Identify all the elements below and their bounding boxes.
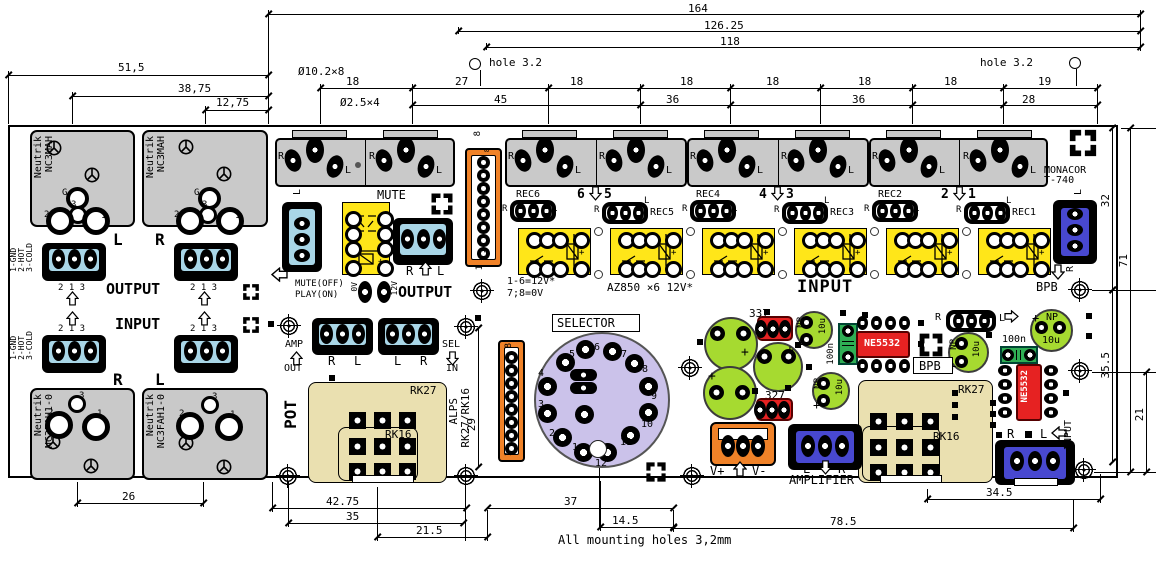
rca-channel-label: L (575, 166, 581, 176)
alps-model-label: RK27/RK16 (460, 388, 471, 448)
selector-pin-label: 4 (538, 369, 544, 379)
pot-pad (399, 412, 416, 429)
mounting-hole (472, 281, 492, 301)
np-label: NP (1046, 313, 1058, 323)
rec-channel-label: L (552, 205, 557, 214)
solder-pad (885, 316, 896, 330)
solder-pad (397, 137, 415, 163)
dim-line (412, 105, 1097, 106)
dim-line (1020, 350, 1021, 360)
np-label: NP (814, 378, 823, 389)
via-pad (870, 270, 879, 279)
connector-pad (82, 413, 110, 441)
dim-line (486, 43, 487, 50)
dim-line (8, 75, 268, 76)
solder-pad (877, 203, 888, 219)
rca-channel-label: R (508, 152, 514, 162)
solder-pad (358, 281, 372, 303)
np-label: NP (950, 339, 959, 350)
relay-pad (552, 232, 569, 249)
rec-channel-label: R (956, 206, 961, 215)
solder-pad (505, 403, 518, 416)
rec-channel-label: L (914, 205, 919, 214)
hole-callout-label: hole 3.2 (980, 57, 1033, 68)
solder-pad (695, 203, 706, 219)
dim-line (1076, 69, 1077, 86)
rec-channel-label: R (594, 206, 599, 215)
solder-pad (900, 137, 918, 163)
via-square (952, 390, 958, 396)
solder-pad (402, 324, 415, 344)
dim-line (8, 71, 9, 124)
xlr-brand-label: Neutrik (34, 394, 44, 436)
connector-pad (176, 207, 204, 235)
dim-line (1112, 128, 1113, 290)
dim-label: 32 (1100, 194, 1111, 207)
solder-pad (966, 313, 977, 329)
dot (355, 162, 361, 168)
connector-pad (215, 413, 243, 441)
solder-pad (903, 203, 914, 219)
direction-arrow-icon (771, 186, 784, 201)
pin-label: 3 (202, 201, 207, 210)
pin-label: 2 (48, 409, 53, 418)
electrolytic-cap (704, 317, 758, 371)
dim-line (77, 503, 203, 504)
solder-pad (477, 195, 490, 208)
direction-arrow-icon (733, 461, 747, 477)
pot-pad (870, 413, 887, 430)
dim-line (1140, 10, 1141, 51)
via-square (986, 332, 992, 338)
dim-line (842, 345, 854, 346)
pcb-logo-icon (430, 192, 454, 216)
solder-pad (710, 326, 725, 341)
via-square (752, 388, 758, 394)
dim-label: 18 (680, 76, 693, 87)
solder-pad (885, 359, 896, 373)
rca-channel-label: L (1030, 166, 1036, 176)
solder-pad (1002, 349, 1014, 361)
xlr-model-label: NC3MAH (157, 136, 167, 172)
solder-pad (477, 169, 490, 182)
solder-pad (417, 229, 430, 249)
dim-line (458, 31, 1140, 32)
np-label: NP (797, 317, 806, 328)
solder-pad (84, 249, 97, 269)
dim-line (268, 10, 269, 124)
channel-label: R (935, 313, 941, 323)
channel-label: L (1074, 189, 1084, 195)
dim-label: 26 (122, 491, 135, 502)
dim-line (1094, 472, 1156, 473)
via-square (996, 432, 1002, 438)
rec-label: REC4 (696, 190, 720, 200)
rca-mount-tab (613, 130, 668, 138)
input-section-label: INPUT (115, 317, 160, 332)
solder-pad (528, 203, 539, 219)
plus-mark: + (813, 399, 820, 411)
solder-pad (505, 416, 518, 429)
channel-label: L (437, 265, 444, 277)
solder-pad (754, 401, 766, 419)
via-pad (686, 227, 695, 236)
pot-pad (349, 412, 366, 429)
mounting-hole (456, 317, 476, 337)
solder-pad (800, 205, 811, 221)
pin1-label: 1 (505, 451, 514, 456)
rca-mount-tab (704, 130, 759, 138)
rca-channel-label: L (939, 166, 945, 176)
pcb-layout-canvas: 164126.2511851,538,7512,752642.75373514.… (0, 0, 1162, 563)
ground-symbol-icon (83, 458, 99, 474)
direction-arrow-icon (1004, 310, 1019, 323)
via-square (952, 402, 958, 408)
connector-pad (46, 207, 74, 235)
dim-line (72, 92, 73, 124)
relay-pad (828, 261, 845, 278)
mounting-note: All mounting holes 3,2mm (558, 534, 731, 546)
solder-pad (998, 365, 1012, 376)
via-pad (962, 227, 971, 236)
solder-pad (787, 205, 798, 221)
dim-label: 27 (455, 76, 468, 87)
solder-pad (216, 341, 229, 361)
via-pad (686, 270, 695, 279)
relay-pad (920, 261, 937, 278)
relay-pad (573, 232, 590, 249)
dim-label: 118 (720, 36, 740, 47)
pin1-label: 1 (484, 249, 491, 253)
solder-pad (84, 341, 97, 361)
solder-pad (1067, 208, 1083, 220)
solder-pad (306, 137, 324, 163)
rca-channel-label: L (666, 166, 672, 176)
dim-label: 164 (688, 3, 708, 14)
pot-pad (896, 413, 913, 430)
pin8-label: 8 (474, 131, 483, 136)
dim-line (1121, 128, 1156, 129)
ground-symbol-icon (45, 434, 61, 450)
solder-pad (216, 249, 229, 269)
channel-label: L (394, 355, 401, 367)
solder-pad (708, 203, 719, 219)
input-number-label: 4 (759, 188, 767, 201)
solder-pad (857, 359, 868, 373)
pot-pad (922, 439, 939, 456)
solder-pad (52, 249, 65, 269)
vplus-label: V+ (710, 465, 724, 477)
solder-pad (1044, 379, 1058, 390)
plus-mark: + (671, 249, 676, 258)
relay-pad (345, 211, 362, 228)
solder-pad (835, 435, 849, 457)
rec-channel-label: R (682, 205, 687, 214)
via-square (862, 312, 868, 318)
rca-mount-tab (522, 130, 577, 138)
rca-channel-label: R (278, 152, 284, 162)
solder-pad (1044, 407, 1058, 418)
dim-line (673, 528, 1073, 529)
solder-pad (620, 205, 631, 221)
solder-pad (352, 324, 365, 344)
solder-pad (1067, 240, 1083, 252)
solder-pad (721, 435, 735, 457)
solder-pad (899, 359, 910, 373)
pin-label: 1 (101, 212, 106, 221)
dim-line (959, 139, 960, 186)
solder-pad (515, 203, 526, 219)
solder-pad (766, 401, 778, 419)
rca-mount-tab (977, 130, 1032, 138)
solder-pad (998, 379, 1012, 390)
ground-symbol-icon (178, 139, 194, 155)
relay-pad (345, 241, 362, 258)
cap-value-label: 10u (973, 341, 982, 357)
pin8-label: 8 (505, 343, 514, 348)
ground-symbol-icon (216, 459, 232, 475)
rca-channel-label: L (436, 166, 442, 176)
dim-line (272, 508, 466, 509)
dim-line (596, 139, 597, 186)
dim-line (1100, 474, 1101, 503)
rec-channel-label: R (774, 206, 779, 215)
solder-pad (998, 407, 1012, 418)
dim-line (480, 70, 481, 86)
solder-pad (991, 137, 1009, 163)
output-section-label: OUTPUT (106, 282, 160, 297)
pcb-logo-icon (1068, 128, 1098, 158)
via-pad (594, 270, 603, 279)
pin-label: 2 (44, 211, 49, 220)
solder-pad (477, 221, 490, 234)
direction-arrow-icon (1051, 264, 1065, 280)
solder-pad (1010, 451, 1024, 471)
dim-line (365, 139, 366, 186)
relay-pad (1033, 261, 1050, 278)
rec-channel-label: L (1006, 197, 1011, 206)
selector-pin-label: 12 (595, 459, 607, 469)
mute-label: MUTE (377, 189, 406, 201)
rca-mount-tab (292, 130, 347, 138)
dim-line (1112, 290, 1113, 462)
pot-pad (374, 412, 391, 429)
pot-slot (880, 475, 942, 483)
solder-pad (52, 341, 65, 361)
dim-line (272, 482, 273, 512)
relay-pad (1012, 261, 1029, 278)
solder-pad (736, 435, 750, 457)
plus-mark: + (378, 258, 383, 267)
pot-pad (399, 438, 416, 455)
solder-pad (477, 182, 490, 195)
solder-pad (294, 249, 310, 262)
rec-label: REC3 (830, 208, 854, 218)
input-side-label: INPUT (1064, 420, 1074, 450)
pot-pad (922, 413, 939, 430)
solder-pad (68, 249, 81, 269)
solder-pad (955, 355, 968, 368)
direction-arrow-icon (953, 186, 966, 201)
dim-label: 36 (852, 94, 865, 105)
rca-channel-label: R (369, 152, 375, 162)
solder-pad (721, 203, 732, 219)
pot-pad (349, 438, 366, 455)
pin8-label: 8 (484, 148, 491, 152)
ground-symbol-icon (178, 435, 194, 451)
dim-line (288, 482, 289, 527)
cap-value-label: 10u (1042, 336, 1060, 346)
solder-pad (377, 281, 391, 303)
dim-label: 28 (1022, 94, 1035, 105)
pin-label: G (194, 189, 199, 198)
pcb-logo-icon (242, 316, 260, 334)
relay-pad (552, 261, 569, 278)
solder-pad (736, 326, 751, 341)
selector-pin-label: 3 (538, 400, 544, 410)
dim-label: 45 (494, 94, 507, 105)
pin-label: 1 (230, 411, 235, 420)
dim-label: 34.5 (986, 487, 1013, 498)
dim-line (465, 482, 466, 541)
solder-pad (998, 393, 1012, 404)
via-pad (594, 227, 603, 236)
solder-pad (538, 377, 557, 396)
vminus-label: V- (752, 465, 766, 477)
sel-in-label: SEL (442, 340, 460, 350)
dim-label: 37 (564, 496, 577, 507)
solder-pad (1044, 393, 1058, 404)
dim-line (600, 527, 673, 528)
solder-pad (633, 205, 644, 221)
relay-pad (736, 232, 753, 249)
solder-pad (184, 249, 197, 269)
mute-state-label: PLAY(ON) (295, 291, 338, 300)
rk27-label: RK27 (410, 385, 437, 396)
dim-label: 18 (570, 76, 583, 87)
relay-pad (736, 261, 753, 278)
dim-line (77, 482, 78, 507)
direction-arrow-icon (198, 291, 211, 306)
relay-supply-label: 1-6=12V* (507, 277, 555, 287)
solder-pad (778, 401, 790, 419)
selector-pin-label: 9 (651, 392, 657, 402)
selector-pin-label: 5 (569, 350, 575, 360)
channel-label: R (406, 265, 413, 277)
relay-supply-label: 7;8=0V (507, 289, 543, 299)
relay-pad (757, 261, 774, 278)
dim-label: 14.5 (612, 515, 639, 526)
dim-line (842, 341, 854, 342)
rca-channel-label: R (781, 152, 787, 162)
solder-pad (200, 341, 213, 361)
solder-pad (553, 428, 572, 447)
pcb-logo-icon (242, 283, 260, 301)
direction-arrow-icon (66, 291, 79, 306)
mounting-hole (1070, 280, 1090, 300)
solder-pad (982, 205, 993, 221)
rec-label: REC1 (1012, 208, 1036, 218)
selector-pin-label: 1 (572, 443, 578, 453)
monacor-model-label: T-740 (1044, 176, 1074, 186)
dim-line (927, 499, 1100, 500)
selector-pin-label: 6 (594, 343, 600, 353)
solder-pad (477, 156, 490, 169)
direction-arrow-icon (419, 261, 432, 276)
solder-pad (575, 405, 594, 424)
connector-key-tab (1014, 478, 1058, 486)
via-square (990, 411, 996, 417)
dim-label: 78.5 (830, 516, 857, 527)
mounting-hole (680, 358, 700, 378)
dim-label: 12,75 (216, 97, 249, 108)
via-square (764, 309, 770, 315)
solder-pad (184, 341, 197, 361)
relay-pad (941, 261, 958, 278)
via-pad (962, 270, 971, 279)
via-square (952, 414, 958, 420)
ground-symbol-icon (216, 166, 232, 182)
dim-line (486, 47, 1140, 48)
direction-arrow-icon (589, 186, 602, 201)
relay-pad (345, 226, 362, 243)
via-pad (870, 227, 879, 236)
solder-pad (477, 234, 490, 247)
solder-pad (709, 385, 724, 400)
solder-pad (871, 359, 882, 373)
solder-pad (477, 208, 490, 221)
via-square (268, 321, 274, 327)
rec-label: REC2 (878, 190, 902, 200)
pin-key-label: 1-GND 2-HOT 3-COLD (10, 331, 34, 360)
solder-pad (433, 229, 446, 249)
input-title: INPUT (797, 279, 853, 296)
solder-pad (751, 435, 765, 457)
relay-pad (920, 232, 937, 249)
dim-line (778, 139, 779, 186)
input-number-label: 6 (577, 188, 585, 201)
relay-pad (644, 232, 661, 249)
pin-key-label: 1-GND 2-HOT 3-COLD (10, 243, 34, 272)
dim-line (205, 106, 206, 124)
opamp-label: NE5532 (1021, 370, 1030, 403)
mounting-hole (682, 466, 702, 486)
rca-channel-label: L (345, 166, 351, 176)
solder-pad (294, 233, 310, 246)
plus-mark: + (1039, 249, 1044, 258)
relay-pad (757, 232, 774, 249)
channel-label: R (1007, 428, 1014, 440)
rec-channel-label: R (502, 205, 507, 214)
dim-label: 71 (1118, 254, 1129, 267)
relay-pad (1012, 232, 1029, 249)
via-square (795, 342, 801, 348)
solder-pad (953, 313, 964, 329)
dim-label: 18 (944, 76, 957, 87)
rca-channel-label: R (963, 152, 969, 162)
opamp-label: NE5532 (864, 339, 900, 349)
mounting-hole (279, 316, 299, 336)
pin1-label: 1 (476, 265, 485, 270)
hole-callout-label: hole 3.2 (489, 57, 542, 68)
solder-pad (1046, 451, 1060, 471)
ground-symbol-icon (84, 167, 100, 183)
rec-channel-label: L (732, 205, 737, 214)
relay-pad (665, 261, 682, 278)
pin-label: G (62, 189, 67, 198)
output-label: OUTPUT (398, 285, 452, 300)
relay-pad (644, 261, 661, 278)
